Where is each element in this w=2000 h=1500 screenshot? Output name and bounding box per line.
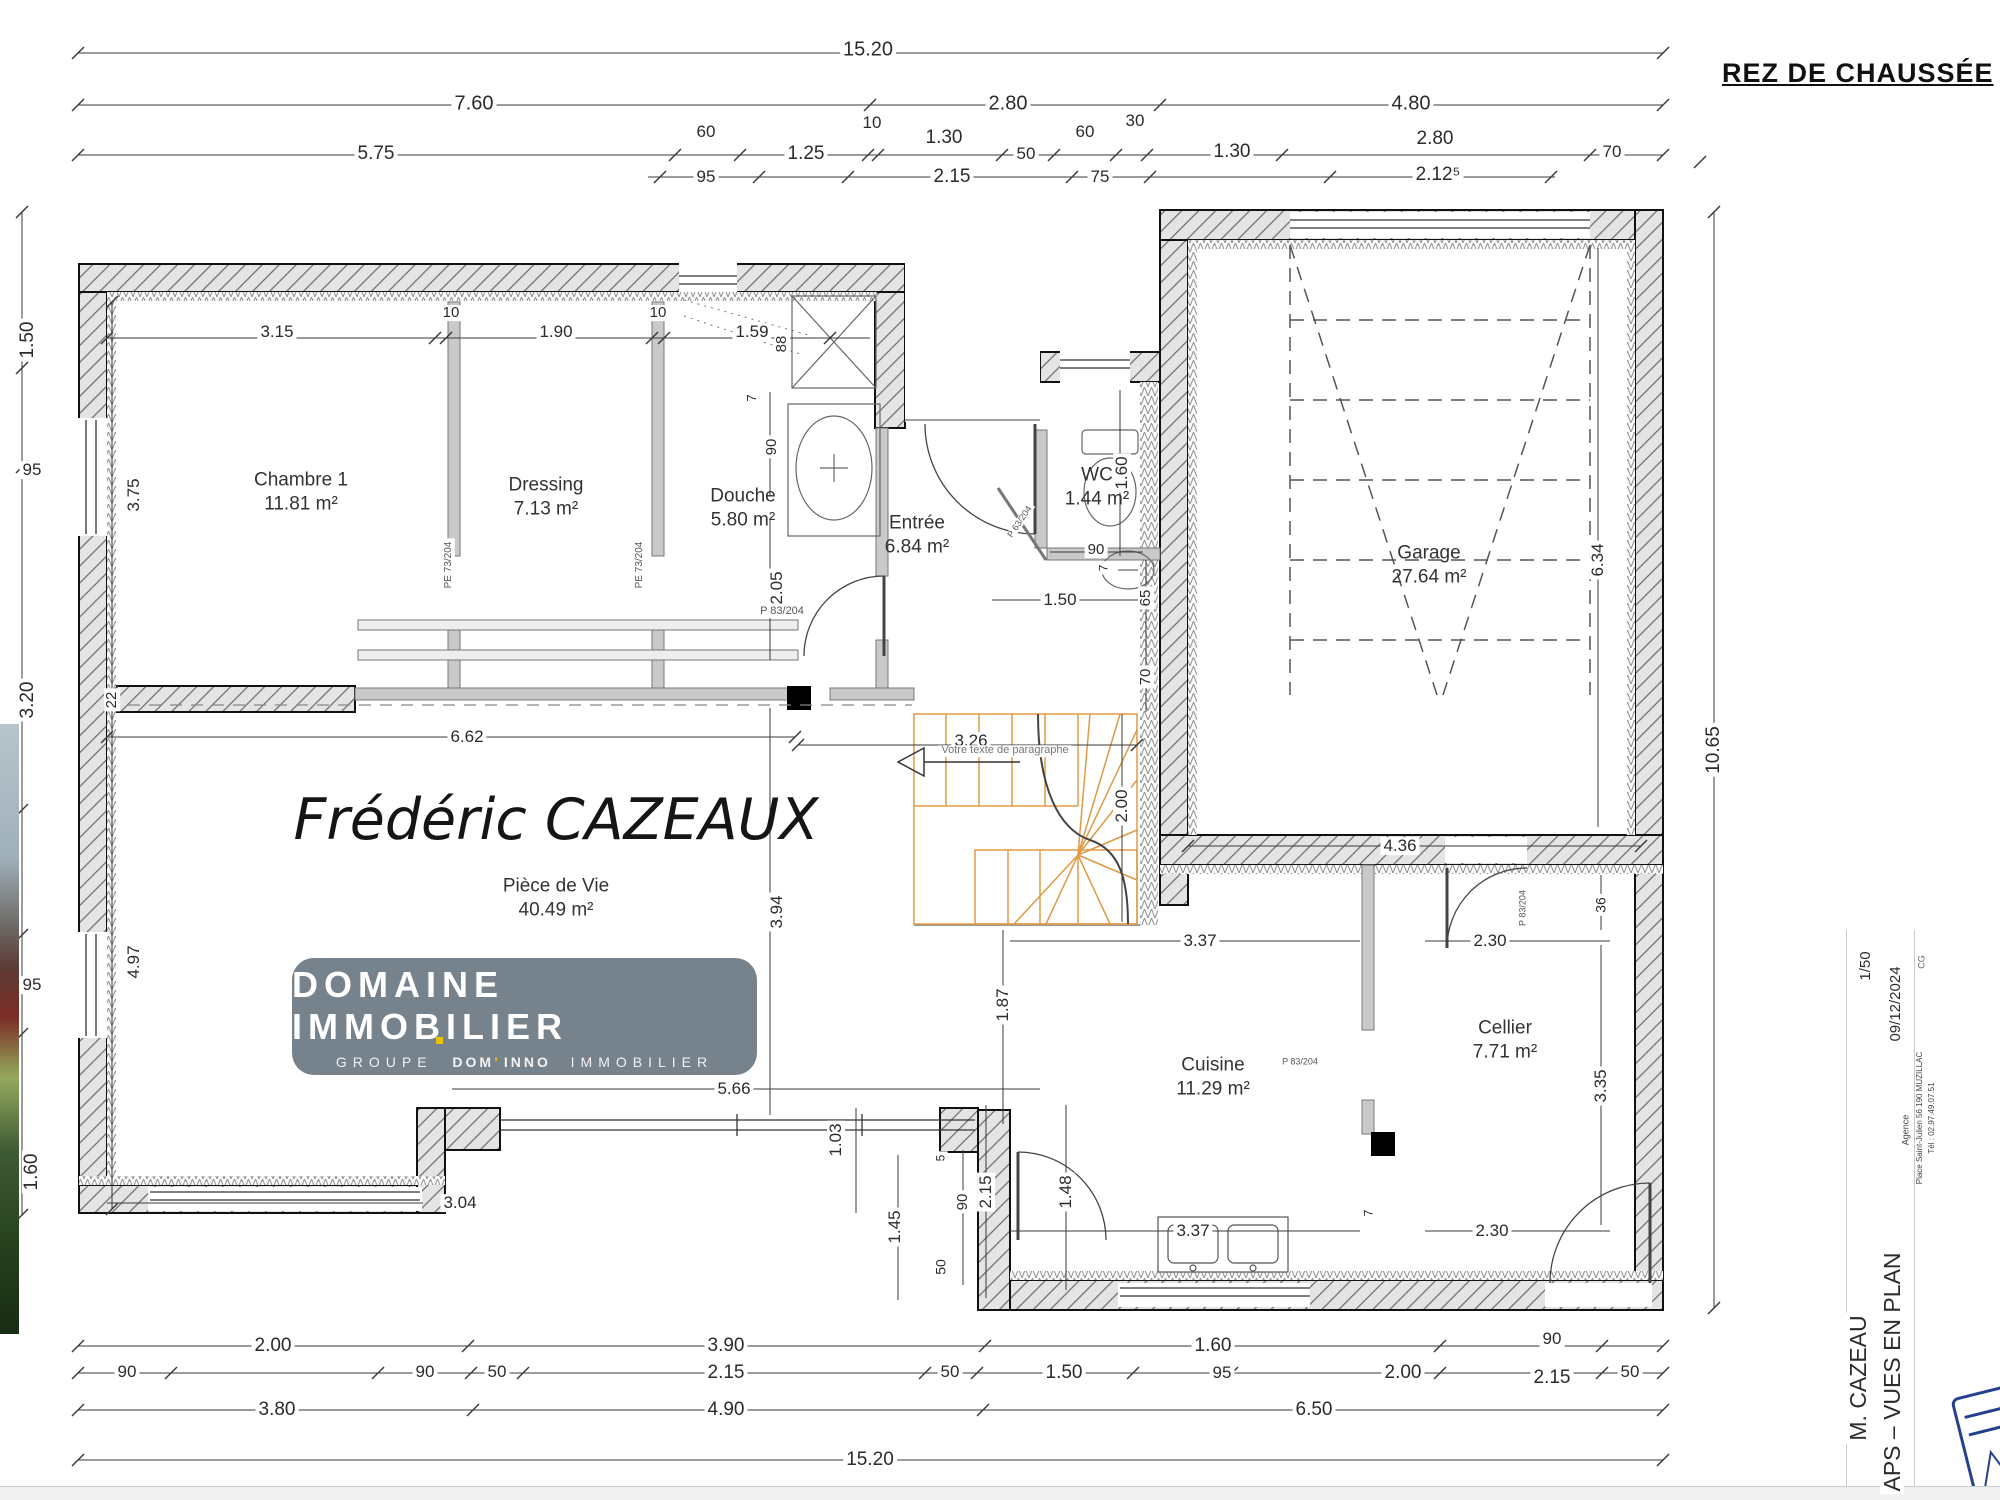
dim: 60 xyxy=(1073,123,1098,141)
dim: 90 xyxy=(764,436,780,459)
dim: 1.60 xyxy=(22,1151,42,1194)
dim: 2.15 xyxy=(977,1172,995,1211)
room-wc: WC1.44 m² xyxy=(1065,463,1129,511)
dim: 1.59 xyxy=(732,323,771,341)
dim: 90 xyxy=(413,1363,438,1381)
dim-bottom-total: 15.20 xyxy=(843,1450,897,1470)
dim: 3.75 xyxy=(125,475,143,514)
dim: 10 xyxy=(440,305,463,321)
titleblock-agency-label: Agence xyxy=(1901,1112,1910,1149)
dim: 50 xyxy=(1014,145,1039,163)
garage-door-swing xyxy=(1290,245,1590,695)
room-garage: Garage27.64 m² xyxy=(1392,541,1467,589)
dim: 2.15 xyxy=(705,1363,748,1383)
dim: 5 xyxy=(935,1152,948,1165)
dim: 2.15 xyxy=(1531,1368,1574,1388)
dim: 2.80 xyxy=(986,94,1031,115)
dim: 60 xyxy=(694,123,719,141)
room-garage-name: Garage xyxy=(1392,541,1467,565)
dim: 1.45 xyxy=(886,1207,904,1246)
dim: 4.80 xyxy=(1389,94,1434,115)
dim: 6.62 xyxy=(447,728,486,746)
dim: 1.60 xyxy=(1192,1336,1235,1356)
dim: 7 xyxy=(745,391,759,404)
room-garage-area: 27.64 m² xyxy=(1392,565,1467,589)
room-cellier-name: Cellier xyxy=(1473,1016,1537,1040)
dim: 6.34 xyxy=(1589,540,1607,579)
room-piece-de-vie-area: 40.49 m² xyxy=(503,898,609,922)
dim: 1.50 xyxy=(1043,1363,1086,1383)
titleblock-client: M. CAZEAU xyxy=(1846,1312,1870,1443)
dim: 5.66 xyxy=(714,1080,753,1098)
room-dressing: Dressing7.13 m² xyxy=(509,473,584,521)
floorplan-sheet: REZ DE CHAUSSÉE Frédéric CAZEAUX DOMAINE… xyxy=(0,0,2000,1500)
room-cellier-area: 7.71 m² xyxy=(1473,1040,1537,1064)
room-douche: Douche5.80 m² xyxy=(710,484,776,532)
door-label: P 83/204 xyxy=(757,606,807,618)
dim: 3.37 xyxy=(1180,932,1219,950)
dim: 3.90 xyxy=(705,1336,748,1356)
door-label: PE 73/204 xyxy=(444,539,455,592)
room-douche-name: Douche xyxy=(710,484,776,508)
dim: 2.05 xyxy=(768,568,786,607)
dim: 3.94 xyxy=(768,892,786,931)
dim: 88 xyxy=(774,333,790,356)
titleblock-agency-phone: Tél : 02.97.49.07.51 xyxy=(1928,1079,1936,1156)
room-cuisine-name: Cuisine xyxy=(1176,1053,1250,1077)
sheet-bottom-edge xyxy=(0,1486,2000,1500)
dim: 1.25 xyxy=(785,144,828,164)
agency-logo: DOMAINE IMMOBILIER GROUPE DOM’INNO IMMOB… xyxy=(292,958,757,1075)
dim: 3.15 xyxy=(257,323,296,341)
agency-logo-subtitle: GROUPE DOM’INNO IMMOBILIER xyxy=(336,1054,713,1070)
room-entree: Entrée6.84 m² xyxy=(885,511,949,559)
titleblock-rule xyxy=(1914,930,1915,1500)
dim: 10.65 xyxy=(1704,723,1724,777)
room-wc-area: 1.44 m² xyxy=(1065,487,1129,511)
titleblock-agency-address: Place Saint-Julien 56 190 MUZILLAC xyxy=(1916,1049,1924,1188)
dim: 50 xyxy=(938,1363,963,1381)
titleblock-scale: 1/50 xyxy=(1858,948,1874,983)
background-photo-sliver xyxy=(0,724,19,1334)
room-cuisine: Cuisine11.29 m² xyxy=(1176,1053,1250,1101)
room-chambre-1-name: Chambre 1 xyxy=(254,468,348,492)
dim: 2.00 xyxy=(252,1336,295,1356)
room-dressing-area: 7.13 m² xyxy=(509,497,584,521)
dim: 65 xyxy=(1138,587,1154,610)
logo-accent-dot-icon xyxy=(436,1037,443,1044)
dim: 7 xyxy=(1098,562,1111,575)
bathroom-washbasin xyxy=(788,404,880,536)
dim: 4.90 xyxy=(705,1400,748,1420)
room-wc-name: WC xyxy=(1065,463,1129,487)
dim: 90 xyxy=(955,1191,971,1214)
room-dressing-name: Dressing xyxy=(509,473,584,497)
dim: 75 xyxy=(1088,168,1113,186)
titleblock-date: 09/12/2024 xyxy=(1888,963,1904,1044)
dim: 50 xyxy=(485,1363,510,1381)
dim: 90 xyxy=(115,1363,140,1381)
dim: 1.03 xyxy=(827,1120,845,1159)
door-label: P 83/204 xyxy=(1518,887,1527,929)
watermark-name: Frédéric CAZEAUX xyxy=(294,787,819,853)
dim: 6.50 xyxy=(1293,1400,1336,1420)
dim: 70 xyxy=(1138,666,1154,689)
dim: 4.36 xyxy=(1380,837,1419,855)
dim: 2.30 xyxy=(1472,1222,1511,1240)
exterior-walls xyxy=(79,210,1663,1310)
dim-top-total: 15.20 xyxy=(840,40,896,61)
dim: 3.20 xyxy=(18,679,38,722)
dim: 10 xyxy=(647,305,670,321)
page-title: REZ DE CHAUSSÉE xyxy=(1722,58,2000,89)
titleblock-initials: CG xyxy=(1917,952,1926,972)
dim: 70 xyxy=(1600,143,1625,161)
dim: 1.50 xyxy=(1040,591,1079,609)
dim: 95 xyxy=(20,976,45,994)
dim: 3.37 xyxy=(1173,1222,1212,1240)
dim: 7.60 xyxy=(452,94,497,115)
insulation-layer xyxy=(79,240,1663,1280)
titleblock-doctype: APS – VUES EN PLAN xyxy=(1880,1249,1904,1494)
dim: 3.04 xyxy=(440,1194,479,1212)
dim: 2.00 xyxy=(1382,1363,1425,1383)
dim: 1.90 xyxy=(536,323,575,341)
door-label: PE 73/204 xyxy=(635,539,646,592)
dim: 7 xyxy=(1363,1207,1376,1220)
dim: 1.30 xyxy=(1211,142,1254,162)
dim: 10 xyxy=(860,114,885,132)
dim: 95 xyxy=(1210,1364,1235,1382)
dimension-ticks xyxy=(16,47,1720,1466)
dim: 2.00 xyxy=(1113,786,1131,825)
dim: 5.75 xyxy=(355,144,398,164)
dim: 90 xyxy=(1540,1330,1565,1348)
room-douche-area: 5.80 m² xyxy=(710,508,776,532)
dim: 2.12⁵ xyxy=(1413,165,1464,185)
dim: 95 xyxy=(20,461,45,479)
stair-note: Votre texte de paragraphe xyxy=(938,745,1071,757)
dim: 22 xyxy=(104,689,120,712)
room-chambre-1-area: 11.81 m² xyxy=(254,492,348,516)
dim: 3.80 xyxy=(256,1400,299,1420)
dim: 95 xyxy=(694,168,719,186)
room-chambre-1: Chambre 111.81 m² xyxy=(254,468,348,516)
room-entree-area: 6.84 m² xyxy=(885,535,949,559)
door-label: P 83/204 xyxy=(1279,1057,1321,1066)
dim: 30 xyxy=(1123,112,1148,130)
stamp-logo xyxy=(1952,1383,2000,1500)
room-entree-name: Entrée xyxy=(885,511,949,535)
dim: 36 xyxy=(1594,894,1609,916)
wall-openings xyxy=(66,212,1652,1307)
dim: 1.48 xyxy=(1057,1172,1075,1211)
dim: 2.15 xyxy=(931,167,974,187)
dim: 1.30 xyxy=(923,128,966,148)
dim: 1.50 xyxy=(18,319,38,362)
room-piece-de-vie: Pièce de Vie40.49 m² xyxy=(503,874,609,922)
room-cellier: Cellier7.71 m² xyxy=(1473,1016,1537,1064)
room-cuisine-area: 11.29 m² xyxy=(1176,1077,1250,1101)
dim: 50 xyxy=(934,1256,949,1278)
dim: 2.30 xyxy=(1470,932,1509,950)
dim: 3.35 xyxy=(1592,1066,1610,1105)
dim: 90 xyxy=(1085,542,1108,558)
dim: 2.80 xyxy=(1414,129,1457,149)
room-piece-de-vie-name: Pièce de Vie xyxy=(503,874,609,898)
structural-columns xyxy=(787,686,1395,1156)
dim: 1.87 xyxy=(994,985,1012,1024)
dim: 50 xyxy=(1618,1363,1643,1381)
dim: 4.97 xyxy=(125,942,143,981)
shower-tray xyxy=(792,296,876,388)
agency-logo-title: DOMAINE IMMOBILIER xyxy=(292,964,757,1048)
